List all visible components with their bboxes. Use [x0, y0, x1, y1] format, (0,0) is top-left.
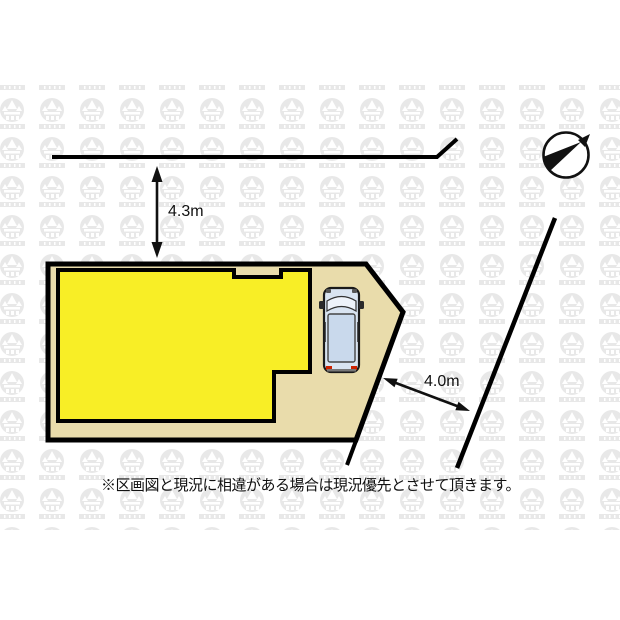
road-line-east	[457, 218, 555, 468]
building-footprint	[58, 270, 310, 421]
disclaimer-note: ※区画図と現況に相違がある場合は現況優先とさせて頂きます。	[101, 474, 561, 495]
dimension-label-4-3m: 4.3m	[168, 203, 204, 220]
car-mirror-left	[319, 301, 324, 309]
dimension-arrow-east: 4.0m	[383, 373, 470, 411]
compass-icon	[543, 133, 590, 178]
car-mirror-right	[359, 301, 364, 309]
road-line-north	[52, 139, 457, 157]
dimension-arrow-north: 4.3m	[152, 166, 204, 258]
car-top-view-icon	[319, 288, 364, 372]
site-plan-svg: 4.3m 4.0m	[0, 0, 620, 620]
dimension-label-4-0m: 4.0m	[424, 373, 460, 390]
plot-diagram-page: 4.3m 4.0m ※区画図と現況に相違がある場合は現況優先とさせて頂きます。	[0, 0, 620, 620]
